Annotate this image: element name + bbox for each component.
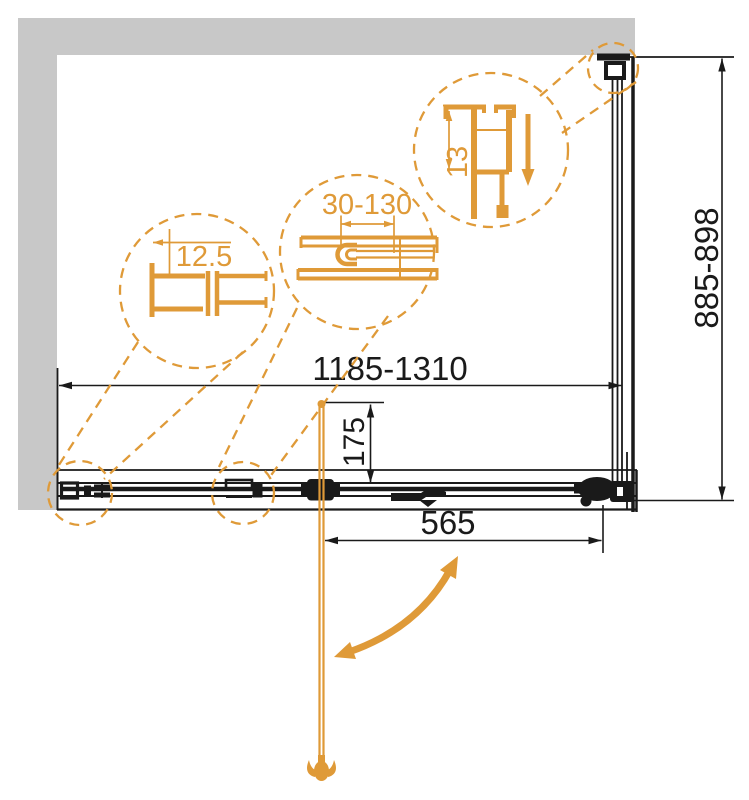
detail-circle-wall-profile	[120, 214, 274, 368]
technical-drawing-page: 1185-1310 885-898 565 175	[0, 0, 749, 800]
detail-adjustment: 30-130	[280, 175, 437, 329]
door-swing-arrow	[334, 556, 458, 659]
leader-line	[540, 50, 593, 96]
door-width-label: 565	[420, 504, 475, 541]
adjustment-label: 30-130	[322, 189, 412, 221]
top-profile-label: 13	[442, 146, 474, 178]
handle-offset-label: 175	[338, 417, 371, 467]
bracket-body	[606, 63, 624, 78]
leader-line	[104, 352, 243, 479]
door-handle	[307, 400, 458, 781]
detail-top-profile: 13	[414, 73, 568, 227]
wall-top-band	[18, 18, 635, 55]
bottom-rail-assembly	[57, 470, 637, 512]
corner-connector	[574, 477, 634, 507]
height-range-label: 885-898	[688, 207, 725, 328]
detail-wall-profile: 12.5	[120, 214, 274, 368]
dim-height: 885-898	[688, 59, 725, 500]
dim-handle: 175	[323, 403, 384, 484]
side-panel-edge	[613, 57, 634, 512]
source-circle-adjustment	[212, 462, 274, 524]
enclosure-frame	[57, 54, 734, 513]
wall-profile-label: 12.5	[176, 241, 232, 273]
technical-drawing-canvas: 1185-1310 885-898 565 175	[0, 0, 749, 800]
slide-direction-arrow	[522, 114, 535, 186]
leader-line	[219, 308, 297, 467]
wall-left-band	[18, 18, 57, 510]
handle-top-cap	[318, 400, 326, 408]
detail-circle-top-profile	[414, 73, 568, 227]
width-range-label: 1185-1310	[312, 350, 467, 387]
adjustment-profile-drawing	[298, 237, 437, 280]
handle-bottom-ornament	[307, 755, 336, 781]
dim-width: 1185-1310	[59, 350, 622, 387]
leader-line	[57, 342, 138, 468]
dimensions: 1185-1310 885-898 565 175	[59, 59, 725, 554]
dim-door: 565	[325, 504, 603, 553]
